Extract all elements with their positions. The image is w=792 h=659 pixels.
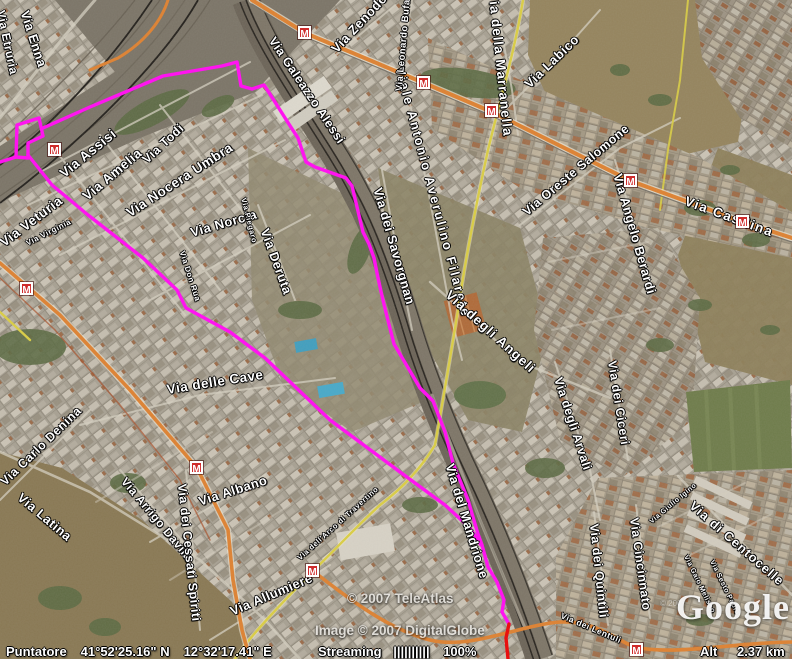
status-pointer: Puntatore41°52'25.16" N12°32'17.41" E xyxy=(6,644,272,659)
streaming-progress-bars: |||||||||| xyxy=(393,644,429,659)
status-altitude: Alt 2.37 km xyxy=(700,644,785,659)
satellite-map-canvas[interactable] xyxy=(0,0,792,659)
altitude-label: Alt xyxy=(700,644,717,659)
pointer-label: Puntatore xyxy=(6,644,67,659)
streaming-label: Streaming xyxy=(318,644,382,659)
metro-station-icon[interactable]: M xyxy=(48,143,61,156)
metro-station-icon[interactable]: M xyxy=(485,104,498,117)
metro-station-icon[interactable]: M xyxy=(630,643,643,656)
metro-station-icon[interactable]: M xyxy=(624,174,637,187)
metro-station-icon[interactable]: M xyxy=(417,76,430,89)
google-earth-viewport[interactable]: Via Enna Via Etruria Via Assisi Via Amel… xyxy=(0,0,792,659)
status-streaming: Streaming |||||||||| 100% xyxy=(318,644,476,659)
metro-station-icon[interactable]: M xyxy=(306,564,319,577)
copyright-teleatlas: © 2007 TeleAtlas xyxy=(347,591,454,606)
grain-overlay xyxy=(0,0,792,659)
metro-station-icon[interactable]: M xyxy=(298,26,311,39)
metro-station-icon[interactable]: M xyxy=(736,215,749,228)
metro-station-icon[interactable]: M xyxy=(190,461,203,474)
google-watermark: Google xyxy=(676,586,790,628)
altitude-value: 2.37 km xyxy=(737,644,785,659)
copyright-digitalglobe: Image © 2007 DigitalGlobe xyxy=(315,623,485,638)
pointer-longitude: 12°32'17.41" E xyxy=(184,644,272,659)
streaming-percent: 100% xyxy=(443,644,476,659)
pointer-latitude: 41°52'25.16" N xyxy=(81,644,170,659)
metro-station-icon[interactable]: M xyxy=(20,282,33,295)
